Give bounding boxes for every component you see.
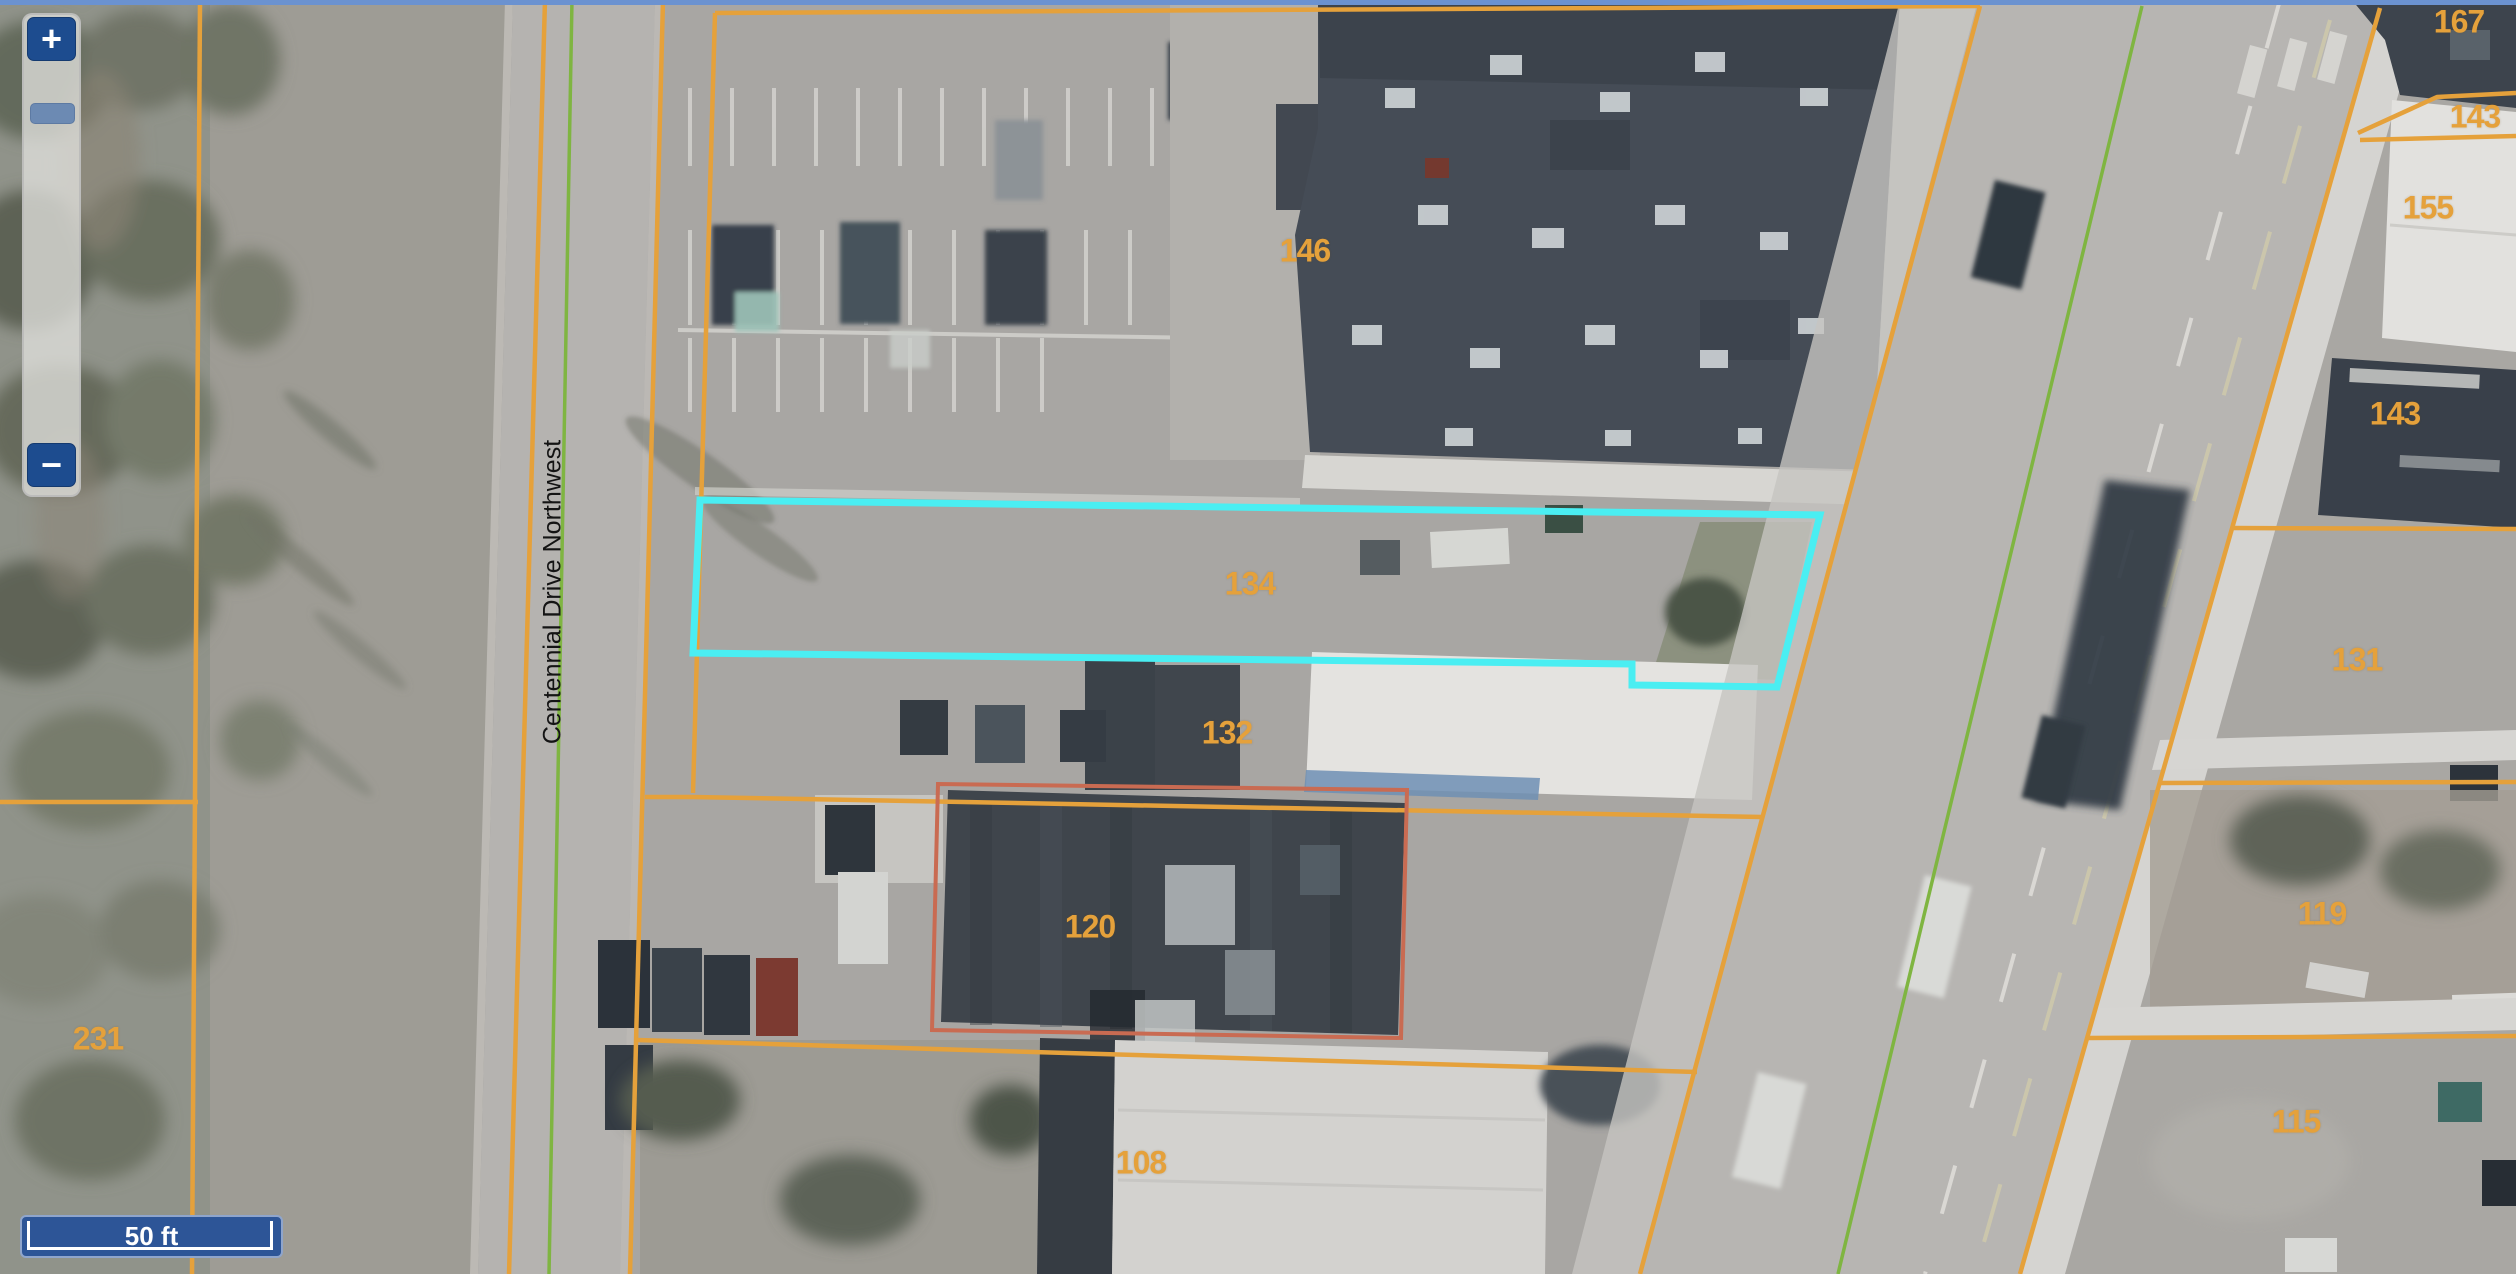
parcel-label-131: 131 (2332, 642, 2382, 679)
parcel-label-143-north: 143 (2450, 99, 2500, 136)
zoom-out-button[interactable]: − (27, 443, 76, 487)
parcel-line-left-vertical (192, 0, 200, 1274)
parcel-line-132-120-boundary (645, 797, 1762, 817)
parcel-label-115: 115 (2272, 1104, 2321, 1141)
window-top-edge (0, 0, 2516, 5)
parcel-label-143-south: 143 (2370, 396, 2420, 433)
parcel-line-119-115-boundary (2088, 1036, 2516, 1038)
parcel-label-120: 120 (1065, 909, 1115, 946)
parcel-label-167: 167 (2434, 4, 2484, 41)
parcel-line-143-131-boundary (2232, 528, 2516, 529)
parcel-label-146: 146 (1280, 233, 1330, 270)
parcel-line-block-west (693, 13, 715, 793)
zoom-slider-track[interactable] (24, 61, 79, 443)
selected-parcel-120-outline[interactable] (932, 784, 1407, 1038)
parcel-label-119: 119 (2298, 896, 2347, 933)
parcel-line-road-east (2020, 8, 2380, 1274)
map-canvas[interactable]: 146 134 132 120 108 231 167 143 155 143 … (0, 0, 2516, 1274)
parcel-line-120-108-boundary (637, 1040, 1697, 1072)
parcel-label-155: 155 (2403, 190, 2453, 227)
parcel-label-132: 132 (1202, 715, 1252, 752)
zoom-in-button[interactable]: + (27, 17, 76, 61)
zoom-slider-handle[interactable] (30, 103, 75, 124)
parcel-line-centennial-east (630, 0, 663, 1274)
parcel-line-road-west (1640, 6, 1980, 1274)
parcel-line-block-top (715, 6, 1980, 13)
street-label-centennial-drive-northwest: Centennial Drive Northwest (539, 440, 568, 744)
parcel-boundaries (0, 0, 2516, 1274)
zoom-control: + − (22, 13, 81, 497)
parcel-label-108: 108 (1116, 1145, 1166, 1182)
parcel-line-131-119-boundary (2160, 782, 2516, 783)
scale-label: 50 ft (22, 1221, 281, 1252)
road-centerline-division (1838, 6, 2142, 1274)
parcel-label-134: 134 (1225, 566, 1275, 603)
parcel-line-143-155-boundary (2360, 136, 2516, 140)
parcel-label-231: 231 (73, 1021, 123, 1058)
scale-bar: 50 ft (20, 1215, 283, 1258)
